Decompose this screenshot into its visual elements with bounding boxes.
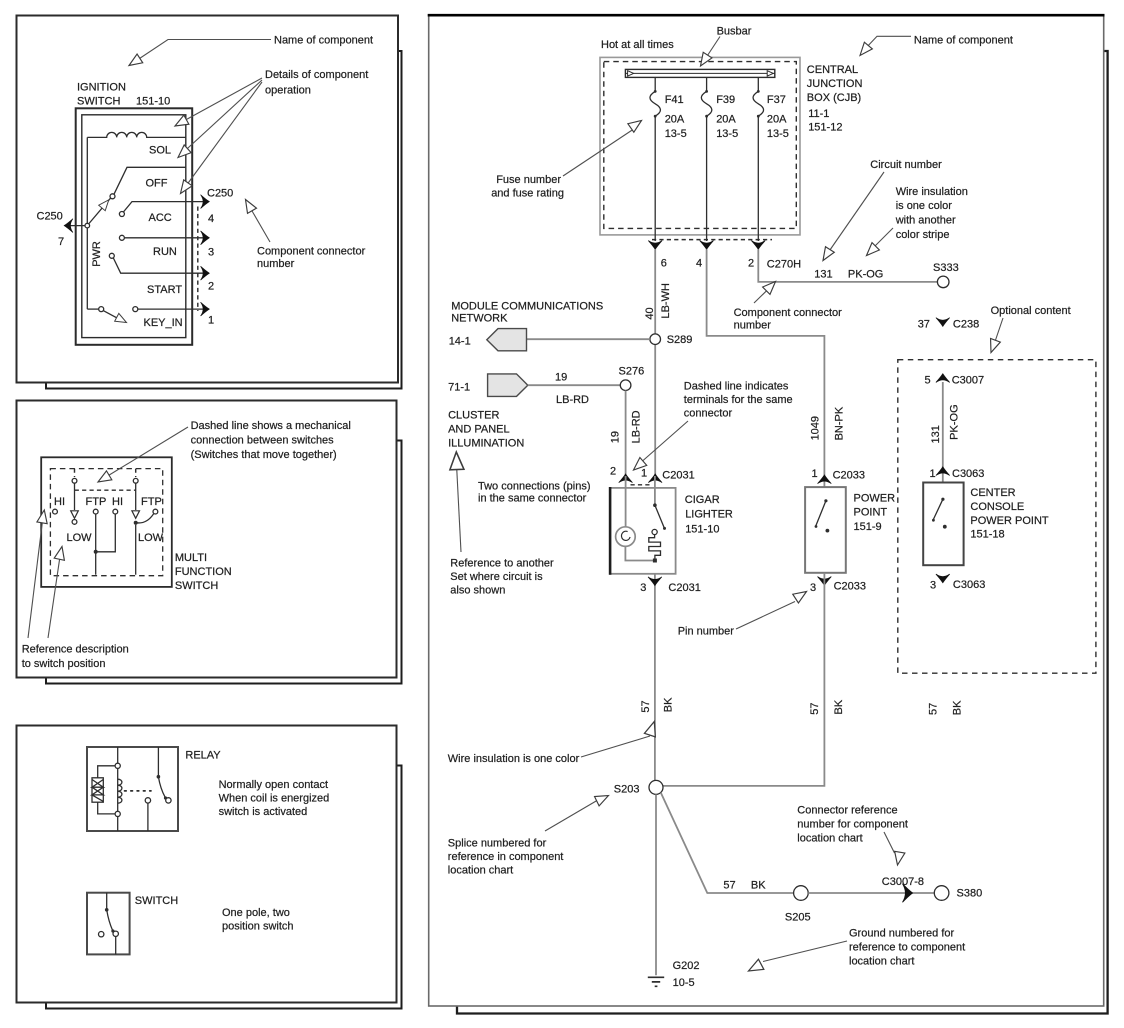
svg-text:151-12: 151-12 [808, 122, 842, 134]
svg-text:151-10: 151-10 [136, 96, 170, 108]
svg-text:START: START [147, 284, 182, 296]
svg-text:BK: BK [751, 880, 766, 892]
svg-text:Splice numbered for: Splice numbered for [448, 838, 547, 850]
svg-text:terminals for the same: terminals for the same [684, 394, 793, 406]
svg-text:BOX (CJB): BOX (CJB) [807, 92, 861, 104]
svg-text:3: 3 [208, 247, 214, 259]
svg-text:SWITCH: SWITCH [135, 895, 178, 907]
svg-text:2: 2 [748, 258, 754, 270]
svg-text:Connector reference: Connector reference [797, 805, 897, 817]
svg-text:BK: BK [833, 699, 845, 714]
svg-text:SWITCH: SWITCH [77, 96, 120, 108]
svg-text:PK-OG: PK-OG [848, 269, 883, 281]
svg-text:JUNCTION: JUNCTION [807, 78, 863, 90]
svg-text:1: 1 [641, 468, 647, 480]
svg-text:13-5: 13-5 [716, 128, 738, 140]
svg-text:Dashed line indicates: Dashed line indicates [684, 381, 789, 393]
svg-text:7: 7 [58, 236, 64, 248]
svg-text:IGNITION: IGNITION [77, 82, 126, 94]
svg-text:20A: 20A [767, 114, 787, 126]
svg-text:3: 3 [810, 582, 816, 594]
svg-text:S276: S276 [619, 366, 645, 378]
svg-text:One pole, two: One pole, two [222, 907, 290, 919]
svg-text:BK: BK [951, 700, 963, 715]
svg-text:6: 6 [661, 258, 667, 270]
svg-text:ACC: ACC [149, 212, 172, 224]
svg-text:S380: S380 [957, 888, 983, 900]
svg-text:LB-RD: LB-RD [556, 394, 589, 406]
svg-text:20A: 20A [665, 114, 685, 126]
svg-text:Pin number: Pin number [678, 626, 735, 638]
svg-text:POINT: POINT [854, 507, 888, 519]
svg-text:PK-OG: PK-OG [949, 404, 961, 439]
svg-text:number: number [734, 320, 772, 332]
svg-text:Hot at all times: Hot at all times [601, 39, 674, 51]
svg-text:Set where circuit is: Set where circuit is [450, 571, 543, 583]
svg-text:RUN: RUN [153, 246, 177, 258]
svg-text:Name of component: Name of component [274, 35, 373, 47]
svg-text:1049: 1049 [810, 416, 822, 440]
svg-text:number: number [257, 258, 295, 270]
svg-text:4: 4 [208, 213, 214, 225]
svg-text:Details of component: Details of component [265, 69, 368, 81]
svg-text:operation: operation [265, 85, 311, 97]
svg-text:S333: S333 [933, 262, 959, 274]
svg-text:When coil is energized: When coil is energized [219, 793, 330, 805]
svg-text:also shown: also shown [450, 585, 505, 597]
svg-text:reference to component: reference to component [849, 942, 965, 954]
svg-text:151-9: 151-9 [854, 521, 882, 533]
svg-text:Ground numbered for: Ground numbered for [849, 928, 955, 940]
svg-text:Component connector: Component connector [734, 307, 843, 319]
svg-text:S203: S203 [614, 784, 640, 796]
svg-text:CENTRAL: CENTRAL [807, 64, 858, 76]
svg-text:57: 57 [723, 880, 735, 892]
svg-text:1: 1 [930, 468, 936, 480]
svg-text:C2033: C2033 [833, 470, 865, 482]
svg-text:151-10: 151-10 [685, 524, 719, 536]
svg-text:C3007: C3007 [952, 375, 984, 387]
svg-text:location chart: location chart [448, 865, 513, 877]
svg-text:with another: with another [895, 215, 956, 227]
svg-text:S289: S289 [667, 334, 693, 346]
svg-text:4: 4 [696, 258, 702, 270]
svg-text:131: 131 [930, 425, 942, 443]
svg-text:CLUSTER: CLUSTER [448, 410, 499, 422]
svg-text:C250: C250 [207, 188, 233, 200]
svg-text:2: 2 [610, 466, 616, 478]
svg-text:71-1: 71-1 [448, 382, 470, 394]
svg-text:Wire insulation is one color: Wire insulation is one color [448, 753, 580, 765]
svg-text:Wire insulation: Wire insulation [896, 186, 968, 198]
svg-text:G202: G202 [673, 960, 700, 972]
svg-text:C2031: C2031 [668, 582, 700, 594]
svg-text:CONSOLE: CONSOLE [970, 501, 1024, 513]
svg-text:Optional content: Optional content [991, 305, 1071, 317]
svg-text:BN-PK: BN-PK [833, 406, 845, 440]
svg-text:number for component: number for component [797, 819, 908, 831]
svg-text:FUNCTION: FUNCTION [175, 566, 232, 578]
svg-text:19: 19 [555, 372, 567, 384]
svg-text:in the same connector: in the same connector [478, 493, 587, 505]
svg-text:location chart: location chart [849, 956, 914, 968]
svg-text:LB-RD: LB-RD [631, 410, 643, 443]
svg-text:F37: F37 [767, 94, 786, 106]
svg-text:5: 5 [925, 375, 931, 387]
svg-text:11-1: 11-1 [808, 108, 829, 120]
svg-text:1: 1 [812, 468, 818, 480]
svg-text:Component connector: Component connector [257, 246, 366, 258]
svg-text:37: 37 [918, 319, 930, 331]
svg-text:NETWORK: NETWORK [451, 313, 508, 325]
svg-text:Fuse number: Fuse number [496, 174, 561, 186]
svg-text:BK: BK [663, 697, 675, 712]
svg-text:20A: 20A [716, 114, 736, 126]
svg-text:13-5: 13-5 [665, 128, 687, 140]
svg-text:Circuit number: Circuit number [870, 159, 942, 171]
svg-text:LIGHTER: LIGHTER [685, 509, 733, 521]
svg-text:CIGAR: CIGAR [685, 494, 720, 506]
svg-text:C3007-8: C3007-8 [882, 876, 924, 888]
svg-text:19: 19 [610, 431, 622, 443]
svg-text:151-18: 151-18 [970, 529, 1004, 541]
svg-text:S205: S205 [785, 912, 811, 924]
svg-text:is one color: is one color [896, 200, 953, 212]
svg-text:13-5: 13-5 [767, 128, 789, 140]
svg-text:CENTER: CENTER [970, 487, 1015, 499]
svg-text:FTP: FTP [141, 496, 162, 508]
svg-text:C250: C250 [37, 211, 63, 223]
svg-text:F41: F41 [665, 94, 684, 106]
svg-text:Busbar: Busbar [717, 26, 752, 38]
svg-text:Reference description: Reference description [22, 644, 129, 656]
svg-text:LOW: LOW [138, 532, 164, 544]
svg-text:40: 40 [644, 307, 656, 319]
svg-text:color stripe: color stripe [896, 229, 950, 241]
svg-text:14-1: 14-1 [449, 336, 471, 348]
svg-text:LOW: LOW [67, 532, 93, 544]
svg-text:ILLUMINATION: ILLUMINATION [448, 438, 524, 450]
svg-text:C2031: C2031 [662, 470, 694, 482]
svg-text:(Switches that move together): (Switches that move together) [191, 449, 337, 461]
svg-text:131: 131 [814, 269, 832, 281]
svg-text:C238: C238 [953, 319, 979, 331]
svg-text:position switch: position switch [222, 921, 294, 933]
svg-text:MULTI: MULTI [175, 552, 207, 564]
svg-text:POWER: POWER [854, 493, 896, 505]
svg-text:MODULE COMMUNICATIONS: MODULE COMMUNICATIONS [451, 301, 603, 313]
svg-text:2: 2 [208, 281, 214, 293]
svg-text:and fuse rating: and fuse rating [491, 188, 564, 200]
svg-text:FTP: FTP [86, 496, 107, 508]
svg-text:connector: connector [684, 408, 733, 420]
svg-text:OFF: OFF [146, 178, 168, 190]
svg-text:Two connections (pins): Two connections (pins) [478, 481, 591, 493]
svg-text:HI: HI [54, 496, 65, 508]
svg-text:Name of component: Name of component [914, 35, 1013, 47]
svg-text:KEY_IN: KEY_IN [144, 317, 183, 329]
svg-text:57: 57 [640, 700, 652, 712]
svg-text:Normally open contact: Normally open contact [219, 779, 328, 791]
svg-text:location chart: location chart [797, 833, 862, 845]
svg-text:switch is activated: switch is activated [219, 806, 308, 818]
svg-text:1: 1 [208, 315, 214, 327]
svg-text:Dashed line shows a mechanical: Dashed line shows a mechanical [191, 420, 351, 432]
svg-text:LB-WH: LB-WH [660, 283, 672, 319]
svg-text:C3063: C3063 [952, 468, 984, 480]
svg-text:reference in component: reference in component [448, 851, 564, 863]
svg-text:C3063: C3063 [953, 579, 985, 591]
svg-text:SOL: SOL [149, 145, 171, 157]
svg-text:HI: HI [112, 496, 123, 508]
svg-text:10-5: 10-5 [673, 977, 695, 989]
svg-text:AND PANEL: AND PANEL [448, 424, 510, 436]
svg-text:PWR: PWR [91, 241, 103, 267]
svg-text:C270H: C270H [767, 259, 801, 271]
svg-text:3: 3 [930, 580, 936, 592]
svg-text:POWER POINT: POWER POINT [970, 515, 1049, 527]
svg-text:C2033: C2033 [834, 581, 866, 593]
svg-text:RELAY: RELAY [185, 750, 221, 762]
svg-text:F39: F39 [716, 94, 735, 106]
svg-text:to switch position: to switch position [22, 658, 106, 670]
svg-text:57: 57 [928, 703, 940, 715]
svg-text:SWITCH: SWITCH [175, 580, 218, 592]
svg-text:Reference to another: Reference to another [450, 558, 554, 570]
svg-text:connection between switches: connection between switches [191, 435, 335, 447]
svg-text:3: 3 [640, 582, 646, 594]
svg-text:57: 57 [809, 702, 821, 714]
